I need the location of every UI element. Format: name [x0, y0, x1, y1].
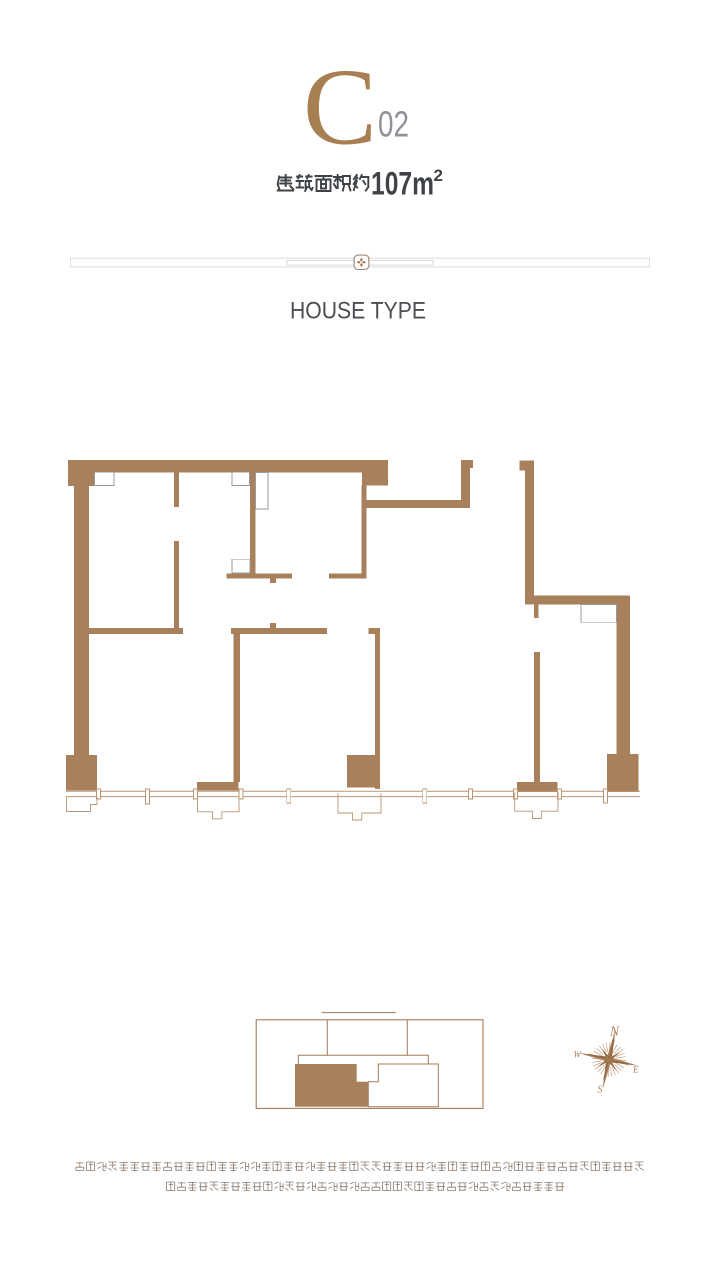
svg-text:2: 2: [434, 166, 443, 185]
svg-text:C: C: [303, 47, 377, 168]
svg-text:S: S: [598, 1085, 603, 1096]
svg-text:HOUSE TYPE: HOUSE TYPE: [290, 298, 426, 325]
svg-text:02: 02: [378, 104, 409, 145]
svg-text:W: W: [574, 1050, 583, 1060]
svg-text:E: E: [632, 1065, 639, 1075]
svg-text:107m: 107m: [371, 166, 434, 202]
svg-text:N: N: [609, 1024, 620, 1039]
